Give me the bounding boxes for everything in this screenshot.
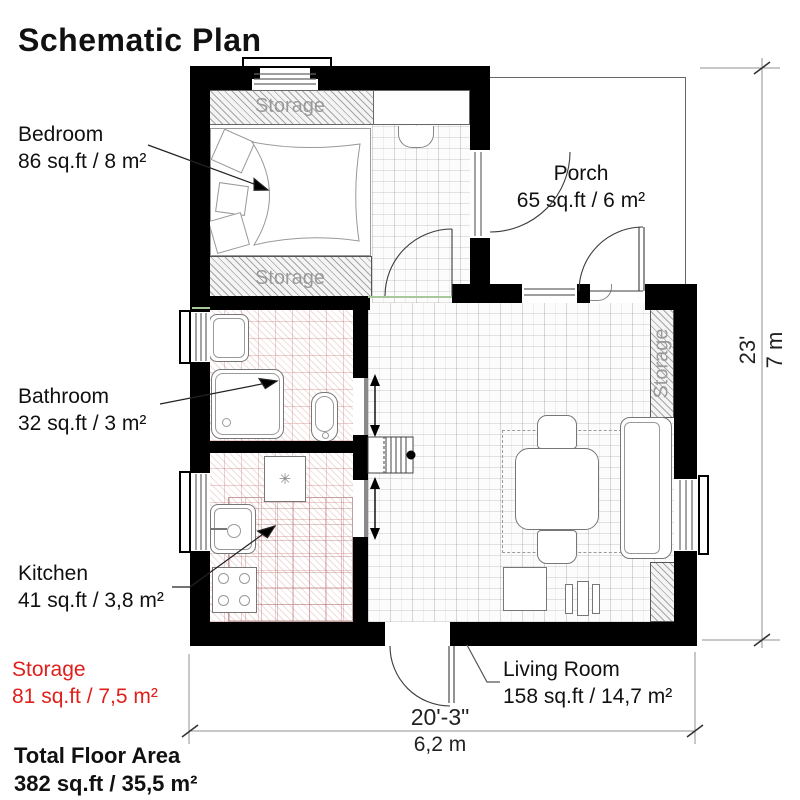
door-opening-front <box>385 622 450 646</box>
tv-stand <box>503 567 547 611</box>
living-room-name: Living Room <box>503 656 672 683</box>
bathroom-name: Bathroom <box>18 383 146 410</box>
kitchen-name: Kitchen <box>18 560 164 587</box>
floor-plan-canvas: Schematic Plan Bedroom 86 sq.ft / 8 m² P… <box>0 0 800 800</box>
shower-drain <box>222 418 231 427</box>
storage-top-text: Storage <box>208 95 372 118</box>
toilet-bowl <box>315 396 334 432</box>
window-kitchen-west <box>190 473 210 551</box>
dimension-bottom-m: 6,2 m <box>340 733 540 757</box>
chair <box>537 530 577 564</box>
dimension-right-ft: 23' <box>734 280 761 420</box>
page-title: Schematic Plan <box>18 22 262 59</box>
storage-note-area: 81 sq.ft / 7,5 m² <box>12 683 158 710</box>
door-opening-bathroom <box>353 378 368 435</box>
dining-table <box>515 448 599 530</box>
storage-side-text: Storage <box>651 309 674 419</box>
storage-note-label: Storage 81 sq.ft / 7,5 m² <box>12 656 158 710</box>
hall-floor <box>372 125 470 303</box>
wall-wet-east <box>353 296 368 626</box>
fridge-snowflake-icon: ✳ <box>279 471 292 488</box>
window-sill-kitchen <box>179 471 191 553</box>
sofa <box>620 417 672 559</box>
total-area: 382 sq.ft / 35,5 m² <box>14 770 197 798</box>
bathroom-label: Bathroom 32 sq.ft / 3 m² <box>18 383 146 437</box>
window-sill-bathroom <box>179 310 191 364</box>
window-bathroom-west <box>190 312 210 362</box>
tv <box>592 584 600 614</box>
wall-east <box>674 292 697 646</box>
window-bedroom-north <box>252 66 318 90</box>
door-opening-kitchen <box>353 480 368 537</box>
dimension-right: 23' 7 m <box>734 280 790 420</box>
chair <box>537 415 577 449</box>
tv <box>577 581 589 616</box>
bedroom-label: Bedroom 86 sq.ft / 8 m² <box>18 121 146 175</box>
wall-living-north-pier <box>577 284 590 303</box>
hatched-pier <box>650 562 676 622</box>
wall-living-north-corner <box>645 284 697 310</box>
bedroom-area: 86 sq.ft / 8 m² <box>18 148 146 175</box>
total-name: Total Floor Area <box>14 742 197 770</box>
porch-outline <box>490 77 686 292</box>
door-opening-hall-porch <box>470 150 490 238</box>
bedroom-name: Bedroom <box>18 121 146 148</box>
fridge: ✳ <box>264 456 306 502</box>
storage-note-name: Storage <box>12 656 158 683</box>
hall-shelf <box>398 126 434 148</box>
dimension-bottom-ft: 20'-3" <box>340 704 540 731</box>
kitchen-faucet <box>227 524 241 538</box>
wall-bath-kitchen <box>190 441 368 453</box>
burner <box>239 573 250 584</box>
tv <box>565 584 573 614</box>
wall-north <box>190 66 490 90</box>
burner <box>218 573 229 584</box>
sofa-seat <box>624 422 660 554</box>
stove <box>212 567 257 613</box>
nightstand <box>215 182 249 216</box>
bathroom-area: 32 sq.ft / 3 m² <box>18 410 146 437</box>
kitchen-area: 41 sq.ft / 3,8 m² <box>18 587 164 614</box>
toilet <box>311 392 338 442</box>
burner <box>218 595 229 606</box>
kitchen-label: Kitchen 41 sq.ft / 3,8 m² <box>18 560 164 614</box>
living-room-label: Living Room 158 sq.ft / 14,7 m² <box>503 656 672 710</box>
door-arc-front <box>390 646 450 706</box>
burner <box>239 595 250 606</box>
window-living-east <box>674 479 697 551</box>
total-floor-area-label: Total Floor Area 382 sq.ft / 35,5 m² <box>14 742 197 798</box>
storage-bottom-text: Storage <box>208 267 372 290</box>
bathroom-sink <box>209 314 249 362</box>
bathroom-sink-bowl <box>213 318 245 358</box>
shower <box>211 369 284 439</box>
wall-bathroom-north <box>190 296 370 310</box>
leader-living-room <box>467 645 500 682</box>
kitchen-sink <box>210 504 256 554</box>
toilet-flush <box>322 432 329 439</box>
window-sill-north <box>242 57 332 68</box>
dimension-right-m: 7 m <box>761 280 788 420</box>
window-sill-living <box>698 475 709 555</box>
wall-living-north-a <box>452 284 522 303</box>
